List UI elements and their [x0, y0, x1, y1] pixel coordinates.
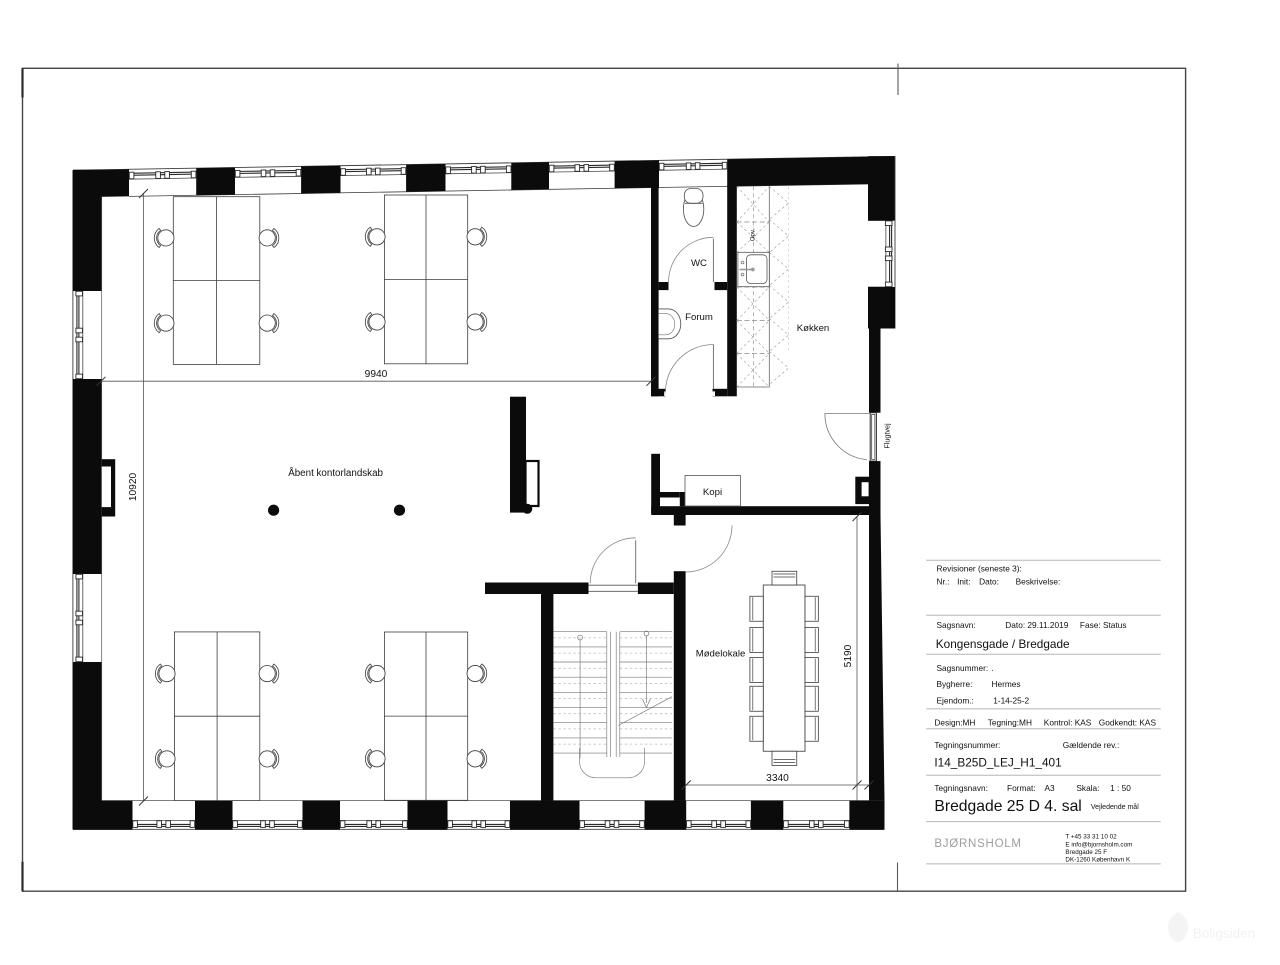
- svg-text:Fase: Status: Fase: Status: [1080, 620, 1127, 630]
- svg-text:Design:MH: Design:MH: [934, 718, 975, 728]
- svg-text:Kongensgade / Bredgade: Kongensgade / Bredgade: [936, 637, 1070, 651]
- svg-text:Hermes: Hermes: [992, 679, 1021, 689]
- svg-text:Beskrivelse:: Beskrivelse:: [1016, 577, 1061, 587]
- svg-text:Dato: 29.11.2019: Dato: 29.11.2019: [1005, 620, 1068, 630]
- svg-text:I14_B25D_LEJ_H1_401: I14_B25D_LEJ_H1_401: [934, 756, 1061, 770]
- svg-text:Tegningsnummer:: Tegningsnummer:: [934, 740, 1000, 750]
- svg-text:Bredgade 25 D 4. sal: Bredgade 25 D 4. sal: [934, 798, 1081, 815]
- svg-text:Ejendom.:: Ejendom.:: [937, 696, 974, 706]
- svg-text:3340: 3340: [766, 773, 789, 784]
- svg-text:Opv.: Opv.: [750, 229, 756, 242]
- svg-text:DK-1260 København K: DK-1260 København K: [1065, 856, 1131, 863]
- svg-text:1-14-25-2: 1-14-25-2: [993, 696, 1029, 706]
- svg-text:Mødelokale: Mødelokale: [696, 648, 746, 659]
- svg-text:Sagsnummer:: Sagsnummer:: [937, 663, 989, 673]
- svg-text:WC: WC: [691, 258, 707, 269]
- svg-text:Revisioner (seneste 3):: Revisioner (seneste 3):: [937, 564, 1022, 574]
- svg-text:Vejledende mål: Vejledende mål: [1091, 803, 1139, 811]
- svg-text:Kontrol: KAS: Kontrol: KAS: [1044, 718, 1092, 728]
- svg-text:Format:: Format:: [1007, 783, 1036, 793]
- svg-text:Køkken: Køkken: [797, 323, 830, 334]
- svg-text:Boligsiden: Boligsiden: [1193, 926, 1255, 941]
- svg-text:Nr.:: Nr.:: [937, 577, 950, 587]
- svg-text:Skala:: Skala:: [1076, 783, 1099, 793]
- svg-text:1 : 50: 1 : 50: [1110, 783, 1131, 793]
- svg-text:.: .: [992, 663, 994, 673]
- svg-text:Kopi: Kopi: [703, 487, 722, 498]
- svg-text:Init:: Init:: [957, 577, 970, 587]
- svg-text:10920: 10920: [128, 473, 139, 502]
- svg-text:Åbent kontorlandskab: Åbent kontorlandskab: [288, 468, 383, 479]
- svg-text:Godkendt: KAS: Godkendt: KAS: [1099, 718, 1157, 728]
- svg-text:Sagsnavn:: Sagsnavn:: [937, 620, 976, 630]
- svg-text:A3: A3: [1045, 783, 1056, 793]
- svg-text:Bygherre:: Bygherre:: [937, 679, 973, 689]
- svg-text:Flugtvej: Flugtvej: [883, 423, 892, 449]
- svg-text:Bredgade 25 F: Bredgade 25 F: [1065, 849, 1107, 856]
- svg-text:Tegning:MH: Tegning:MH: [988, 718, 1032, 728]
- svg-text:Gældende rev.:: Gældende rev.:: [1063, 740, 1120, 750]
- svg-text:Tegningsnavn:: Tegningsnavn:: [934, 783, 988, 793]
- svg-text:Forum: Forum: [685, 312, 713, 323]
- svg-text:9940: 9940: [365, 369, 388, 380]
- svg-text:Dato:: Dato:: [979, 577, 999, 587]
- svg-text:BJØRNSHOLM: BJØRNSHOLM: [934, 838, 1021, 850]
- svg-text:T +45 33 31 10 02: T +45 33 31 10 02: [1065, 834, 1117, 841]
- svg-text:5190: 5190: [843, 644, 854, 667]
- svg-text:E info@bjornsholm.com: E info@bjornsholm.com: [1065, 841, 1132, 848]
